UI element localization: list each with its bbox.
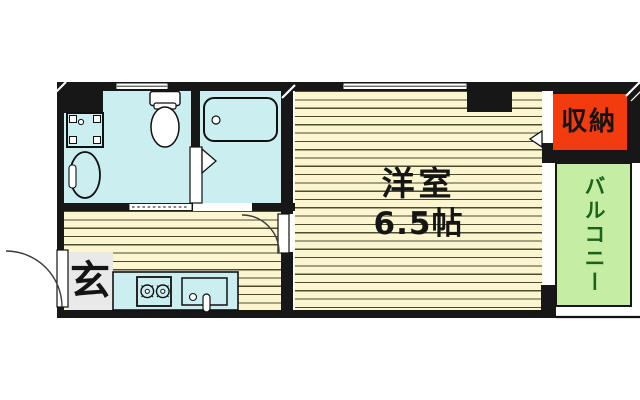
window-icon (116, 83, 168, 90)
floorplan-canvas: 玄 収納 バルコニー (0, 0, 640, 400)
toilet-icon (150, 92, 180, 148)
bathroom-door-icon (190, 147, 216, 203)
faucet-icon (203, 294, 210, 312)
corner-mark (282, 85, 295, 98)
corner-mark (56, 82, 66, 92)
basin-icon (69, 152, 100, 198)
room-door-icon (242, 214, 289, 253)
washing-machine-pan-icon (67, 113, 103, 147)
closet-door-icon (530, 131, 542, 147)
fixtures-layer (0, 0, 640, 400)
corner-mark (631, 91, 640, 101)
accordion-door-icon (129, 204, 192, 211)
stove-burner-icon (157, 285, 170, 298)
kitchen-counter-icon (113, 272, 238, 312)
window-icon (343, 83, 467, 90)
bathtub-icon (204, 98, 277, 141)
entrance-door-icon (6, 250, 68, 307)
stove-burner-icon (141, 285, 154, 298)
